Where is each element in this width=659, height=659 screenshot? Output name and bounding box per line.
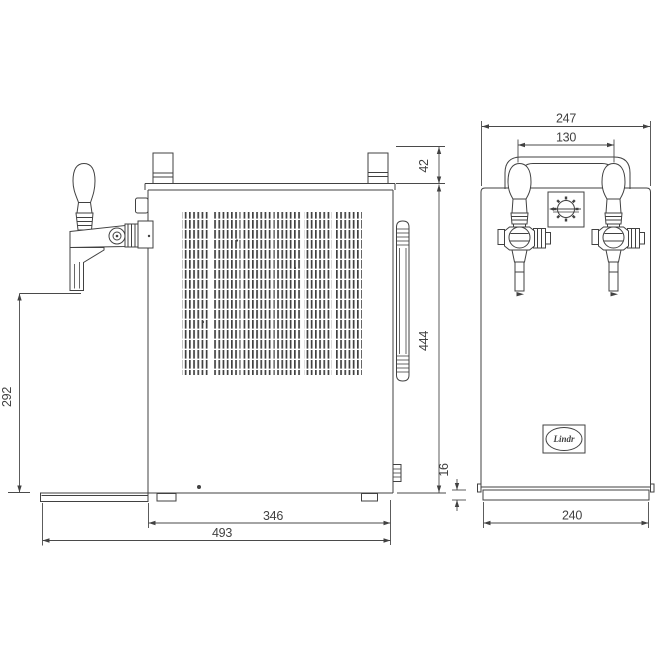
tap-spout	[609, 262, 618, 291]
thermostat-dial-icon[interactable]	[549, 197, 581, 222]
tap-handle-knob	[73, 164, 95, 203]
case-screw	[197, 485, 201, 489]
tap-compensator	[534, 229, 546, 249]
top-fitting-left	[153, 153, 173, 184]
tap-mount-block	[138, 221, 153, 248]
tap-spout	[515, 262, 524, 291]
tap-faucet-side	[70, 164, 153, 291]
dimension-width: 247	[482, 112, 651, 187]
tap-faucet-front-left	[498, 164, 551, 297]
drip-tray	[41, 493, 149, 502]
tap-spout	[70, 248, 104, 291]
tap-faucet-front-right	[592, 164, 645, 297]
corner-tab-right	[651, 484, 655, 492]
dim-label-493: 493	[212, 526, 232, 540]
foot-front	[157, 494, 176, 502]
tap-handle-knob	[508, 164, 531, 200]
tap-compensator	[628, 229, 640, 249]
dim-label-42: 42	[417, 159, 431, 173]
front-view: Lindr	[478, 157, 655, 500]
dimension-total-depth: 493	[43, 503, 391, 546]
dimension-top-fitting: 42	[396, 147, 445, 184]
foot-rear	[362, 494, 378, 502]
dimension-base-height: 16	[437, 463, 466, 511]
drawing-svg: 292 42 444 346	[0, 0, 659, 659]
dimension-handle-spacing: 130	[518, 131, 614, 163]
dim-label-247: 247	[556, 112, 576, 126]
dim-label-346: 346	[263, 509, 283, 523]
vent-grille	[182, 212, 362, 375]
dimension-base-width: 240	[484, 502, 649, 528]
dim-label-240: 240	[562, 509, 582, 523]
dimension-spout-height: 292	[0, 294, 30, 493]
spout-tip-arrow	[517, 292, 525, 296]
dim-label-130: 130	[556, 131, 576, 145]
side-view	[20, 153, 410, 502]
tap-left-port	[592, 230, 599, 245]
dimension-body-depth: 346	[149, 500, 391, 545]
tap-valve-nut	[125, 224, 138, 247]
dim-label-292: 292	[0, 387, 14, 407]
brand-logo-text: Lindr	[552, 434, 575, 444]
spout-tip-arrow	[611, 292, 619, 296]
grille-screw	[202, 321, 204, 323]
front-bracket	[136, 198, 149, 213]
dim-label-444: 444	[417, 331, 431, 351]
tap-handle-knob	[602, 164, 625, 200]
top-fitting-right	[368, 153, 388, 184]
dim-label-16: 16	[437, 463, 451, 477]
dimension-body-height: 444	[397, 185, 446, 494]
corner-tab-left	[478, 484, 482, 492]
brand-logo: Lindr	[543, 425, 585, 453]
cooler-lid	[145, 184, 395, 191]
tap-left-port	[498, 230, 505, 245]
grille-screw	[236, 239, 238, 241]
carry-handle-folded	[397, 221, 410, 381]
thermostat-panel	[548, 192, 584, 227]
technical-drawing: 292 42 444 346	[0, 0, 659, 659]
base-plinth	[483, 490, 649, 500]
cord-grommet	[393, 465, 401, 482]
grille-screw	[294, 267, 296, 269]
tap-handle-neck	[77, 203, 92, 214]
